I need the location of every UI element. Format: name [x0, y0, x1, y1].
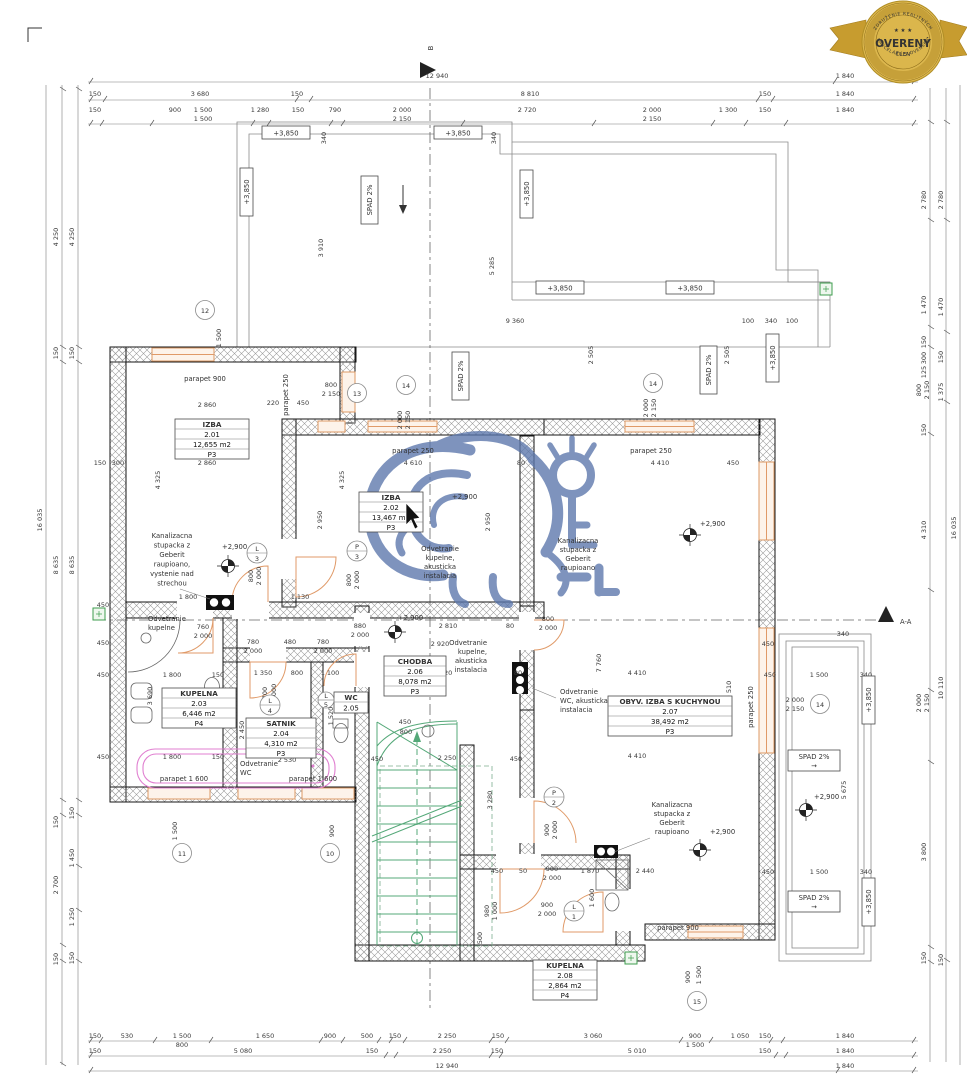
svg-text:1 500: 1 500: [215, 329, 223, 348]
svg-text:450: 450: [510, 755, 522, 763]
svg-text:+3,850: +3,850: [243, 179, 251, 204]
svg-text:2.07: 2.07: [662, 708, 678, 716]
svg-text:450: 450: [727, 459, 739, 467]
svg-text:9 360: 9 360: [506, 317, 525, 325]
svg-text:→: →: [811, 903, 817, 911]
svg-text:+3,850: +3,850: [865, 889, 873, 914]
svg-text:450: 450: [97, 753, 109, 761]
svg-text:450: 450: [97, 601, 109, 609]
svg-text:220: 220: [267, 399, 279, 407]
svg-text:790: 790: [329, 106, 341, 114]
svg-text:vystenie nad: vystenie nad: [150, 570, 194, 578]
svg-text:5 675: 5 675: [840, 781, 848, 800]
svg-text:2 000: 2 000: [543, 874, 562, 882]
svg-text:8 810: 8 810: [521, 90, 540, 98]
svg-text:4 310: 4 310: [920, 521, 928, 540]
grid-marker-left: [93, 608, 105, 620]
svg-text:3: 3: [255, 555, 259, 563]
svg-text:2.04: 2.04: [273, 730, 289, 738]
svg-text:2: 2: [552, 799, 556, 807]
svg-text:2 860: 2 860: [198, 401, 217, 409]
svg-text:2 150: 2 150: [786, 705, 805, 713]
svg-text:150: 150: [759, 1047, 771, 1055]
svg-text:16 035: 16 035: [950, 517, 958, 540]
svg-text:SPAD 2%: SPAD 2%: [705, 354, 713, 385]
svg-text:900: 900: [546, 865, 558, 873]
svg-text:1 500: 1 500: [810, 868, 829, 876]
svg-text:+3,850: +3,850: [547, 285, 572, 293]
svg-text:4 325: 4 325: [154, 471, 162, 490]
badge-subtitle: ČLEN: [896, 51, 911, 58]
svg-text:2.03: 2.03: [191, 700, 207, 708]
svg-text:8 635: 8 635: [68, 556, 76, 575]
svg-text:1 500: 1 500: [194, 115, 213, 123]
svg-text:SPAD 2%: SPAD 2%: [366, 184, 374, 215]
svg-text:2 000: 2 000: [915, 694, 923, 713]
svg-text:2 440: 2 440: [636, 867, 655, 875]
svg-text:2 450: 2 450: [238, 721, 246, 740]
svg-text:instalacia: instalacia: [424, 572, 456, 580]
svg-text:150: 150: [89, 1032, 101, 1040]
svg-text:3: 3: [355, 553, 359, 561]
svg-text:340: 340: [765, 317, 777, 325]
room-label-wc-2-05: WC 2.05: [334, 692, 368, 713]
level-note: +2,900: [710, 828, 735, 836]
svg-text:1 500: 1 500: [695, 966, 703, 985]
svg-text:8 635: 8 635: [52, 556, 60, 575]
svg-text:1 500: 1 500: [173, 1032, 192, 1040]
svg-text:P3: P3: [411, 688, 420, 696]
svg-text:150: 150: [366, 1047, 378, 1055]
svg-text:instalacia: instalacia: [560, 706, 592, 714]
svg-text:IZBA: IZBA: [382, 493, 401, 502]
svg-text:150: 150: [89, 1047, 101, 1055]
svg-text:150: 150: [68, 952, 76, 964]
svg-text:500: 500: [361, 1032, 373, 1040]
svg-text:450: 450: [764, 671, 776, 679]
svg-text:800: 800: [542, 615, 554, 623]
svg-text:P3: P3: [666, 728, 675, 736]
svg-text:4 410: 4 410: [628, 669, 647, 677]
svg-text:1 500: 1 500: [194, 106, 213, 114]
note-odvetranie-wc-ak: Odvetranie WC, akusticka instalacia: [532, 688, 608, 714]
svg-text:1 840: 1 840: [836, 1032, 855, 1040]
svg-text:1 500: 1 500: [810, 671, 829, 679]
svg-text:WC: WC: [240, 769, 252, 777]
svg-text:11: 11: [178, 850, 186, 858]
svg-text:akusticka: akusticka: [424, 563, 456, 571]
svg-text:150: 150: [89, 106, 101, 114]
svg-text:+3,850: +3,850: [523, 181, 531, 206]
svg-text:14: 14: [816, 701, 824, 709]
svg-text:980: 980: [483, 905, 491, 917]
svg-text:raupioano: raupioano: [561, 564, 595, 572]
note-kanalizacna-center: Kanalizacna stupacka z Geberit raupioano: [558, 537, 599, 572]
note-odvetranie-kupelna-ak-1: Odvetranie kupelne, akusticka instalacia: [421, 545, 459, 580]
svg-text:A-A: A-A: [900, 618, 912, 626]
svg-text:5 010: 5 010: [628, 1047, 647, 1055]
svg-text:4 250: 4 250: [68, 228, 76, 247]
svg-text:P4: P4: [195, 720, 204, 728]
svg-text:6,446 m2: 6,446 m2: [182, 710, 216, 718]
svg-text:IZBA: IZBA: [203, 420, 222, 429]
svg-text:150: 150: [937, 954, 945, 966]
note-kanalizacna-bottom: Kanalizacna stupacka z Geberit raupioano: [614, 801, 692, 852]
svg-text:2 780: 2 780: [937, 191, 945, 210]
svg-text:+3,850: +3,850: [273, 130, 298, 138]
svg-text:800: 800: [345, 574, 353, 586]
svg-text:1 840: 1 840: [836, 72, 855, 80]
room-label-satnik-2-04: SATNIK 2.04 4,310 m2 P3: [246, 718, 316, 758]
svg-text:3 690: 3 690: [146, 687, 154, 706]
svg-text:100: 100: [742, 317, 754, 325]
svg-text:5: 5: [324, 701, 328, 709]
svg-text:450: 450: [97, 639, 109, 647]
badge-stars: ★ ★ ★: [894, 28, 912, 34]
svg-text:1 800: 1 800: [163, 753, 182, 761]
svg-text:kupelne,: kupelne,: [425, 554, 454, 562]
dim-chain-bottom: 150 530 1 500 800 1 650 900 500 150 2 25…: [89, 1032, 855, 1070]
svg-text:1 650: 1 650: [256, 1032, 275, 1040]
svg-text:Kanalizacna: Kanalizacna: [652, 801, 693, 809]
parapet-note: parapet 900: [657, 924, 699, 932]
svg-text:+3,850: +3,850: [677, 285, 702, 293]
level-marker: [384, 621, 406, 643]
svg-text:150: 150: [94, 459, 106, 467]
certification-badge: ZDRUŽENIE REALITNÝCH KANCELÁRIÍ SLOVENSK…: [830, 1, 967, 83]
svg-text:1 840: 1 840: [836, 1047, 855, 1055]
svg-text:2 150: 2 150: [404, 411, 412, 430]
svg-text:raupioano,: raupioano,: [154, 561, 190, 569]
svg-text:2.06: 2.06: [407, 668, 423, 676]
svg-text:2 250: 2 250: [438, 1032, 457, 1040]
svg-text:P: P: [552, 789, 556, 797]
svg-text:Geberit: Geberit: [659, 819, 685, 827]
dim-terrace: 3 910 5 285 340 340 9 360 100 340 100 2 …: [215, 132, 798, 365]
dim-chain-left: 16 035 4 250 150 8 635 150 2 700 150 4 2…: [36, 228, 76, 966]
level-marker: [795, 799, 817, 821]
svg-text:Geberit: Geberit: [159, 551, 185, 559]
svg-text:2 250: 2 250: [438, 754, 457, 762]
svg-text:2 780: 2 780: [920, 191, 928, 210]
svg-text:16 035: 16 035: [36, 509, 44, 532]
section-marker-aa: A-A: [878, 606, 912, 626]
svg-text:780: 780: [247, 638, 259, 646]
svg-text:Kanalizacna: Kanalizacna: [152, 532, 193, 540]
svg-text:125: 125: [920, 366, 928, 378]
svg-text:1 840: 1 840: [836, 106, 855, 114]
svg-text:1 375: 1 375: [937, 383, 945, 402]
svg-text:15: 15: [693, 998, 701, 1006]
svg-text:L: L: [324, 692, 328, 700]
svg-text:10 110: 10 110: [937, 677, 945, 700]
svg-text:1 000: 1 000: [491, 902, 499, 921]
room-label-izba-2-01: IZBA 2.01 12,655 m2 P3: [175, 419, 249, 459]
svg-text:2 150: 2 150: [322, 390, 341, 398]
svg-text:150: 150: [759, 90, 771, 98]
svg-text:2 150: 2 150: [393, 115, 412, 123]
svg-text:340: 340: [837, 630, 849, 638]
svg-text:150: 150: [52, 953, 60, 965]
svg-text:CHODBA: CHODBA: [398, 657, 433, 666]
svg-text:stupacka z: stupacka z: [560, 546, 597, 554]
svg-text:450: 450: [399, 718, 411, 726]
svg-text:150: 150: [491, 1047, 503, 1055]
svg-text:530: 530: [121, 1032, 133, 1040]
svg-text:3 060: 3 060: [584, 1032, 603, 1040]
svg-text:500: 500: [476, 932, 484, 944]
svg-text:800: 800: [176, 1041, 188, 1049]
svg-text:SPAD 2%: SPAD 2%: [457, 360, 465, 391]
svg-text:1 130: 1 130: [291, 593, 310, 601]
dim-interior: 2 860 220 450 800 2 150 2 860 4 325 4 32…: [94, 381, 872, 984]
svg-text:KUPELNA: KUPELNA: [180, 689, 218, 698]
svg-text:4,310 m2: 4,310 m2: [264, 740, 298, 748]
grid-marker-top-right: [820, 283, 832, 295]
svg-text:P3: P3: [208, 451, 217, 459]
svg-text:akusticka: akusticka: [455, 657, 487, 665]
svg-text:2.05: 2.05: [343, 705, 359, 713]
svg-text:150: 150: [212, 753, 224, 761]
note-kanalizacna-left: Kanalizacna stupacka z Geberit raupioano…: [150, 532, 210, 599]
svg-text:P3: P3: [387, 524, 396, 532]
level-note: +2,900: [222, 543, 247, 551]
svg-text:300: 300: [920, 352, 928, 364]
svg-text:Odvetranie: Odvetranie: [560, 688, 598, 696]
svg-text:450: 450: [762, 868, 774, 876]
svg-text:2 505: 2 505: [587, 346, 595, 365]
svg-text:3 680: 3 680: [191, 90, 210, 98]
svg-text:4 410: 4 410: [651, 459, 670, 467]
room-label-kupelna-2-03: KUPELNA 2.03 6,446 m2 P4: [162, 688, 236, 728]
svg-text:WC: WC: [344, 693, 357, 702]
grid-marker-bottom: [625, 952, 637, 964]
svg-text:480: 480: [284, 638, 296, 646]
svg-text:kupelne: kupelne: [148, 624, 175, 632]
svg-text:2 950: 2 950: [484, 513, 492, 532]
svg-text:12 940: 12 940: [436, 1062, 459, 1070]
floor-plan-drawing: B A-A 12 940 1 840 150 3 680 150 8 810 1…: [0, 0, 967, 1080]
svg-text:2 700: 2 700: [52, 876, 60, 895]
svg-text:2 720: 2 720: [518, 106, 537, 114]
svg-text:12,655 m2: 12,655 m2: [193, 441, 231, 449]
svg-text:12: 12: [201, 307, 209, 315]
svg-text:WC, akusticka: WC, akusticka: [560, 697, 608, 705]
svg-text:Odvetranie: Odvetranie: [148, 615, 186, 623]
svg-text:150: 150: [68, 347, 76, 359]
parapet-note: parapet 900: [184, 375, 226, 383]
svg-text:1 600: 1 600: [588, 889, 596, 908]
svg-text:2 000: 2 000: [396, 411, 404, 430]
floor-plan-page: B A-A 12 940 1 840 150 3 680 150 8 810 1…: [0, 0, 967, 1080]
svg-text:instalacia: instalacia: [455, 666, 487, 674]
svg-text:OBYV. IZBA S KUCHYNOU: OBYV. IZBA S KUCHYNOU: [619, 697, 720, 706]
svg-text:150: 150: [920, 424, 928, 436]
svg-text:2 000: 2 000: [642, 399, 650, 418]
roof-terrace-outline: [110, 122, 830, 347]
svg-text:880: 880: [354, 622, 366, 630]
svg-text:Odvetranie: Odvetranie: [421, 545, 459, 553]
svg-text:12 940: 12 940: [426, 72, 449, 80]
svg-text:L: L: [255, 545, 259, 553]
svg-text:1 870: 1 870: [581, 867, 600, 875]
room-label-kupelna-2-08: KUPELNA 2.08 2,864 m2 P4: [533, 960, 597, 1000]
svg-text:1: 1: [572, 913, 576, 921]
svg-text:3 910: 3 910: [317, 239, 325, 258]
svg-text:80: 80: [506, 622, 514, 630]
level-note: +2,900: [452, 493, 477, 501]
svg-text:5 080: 5 080: [234, 1047, 253, 1055]
svg-text:stupacka z: stupacka z: [154, 542, 191, 550]
room-labels: IZBA 2.01 12,655 m2 P3 IZBA 2.02 13,467 …: [162, 419, 732, 1000]
svg-text:2 860: 2 860: [198, 459, 217, 467]
level-marker: [679, 524, 701, 546]
svg-text:+3,850: +3,850: [445, 130, 470, 138]
svg-text:1 350: 1 350: [254, 669, 273, 677]
svg-text:150: 150: [292, 106, 304, 114]
svg-text:150: 150: [89, 90, 101, 98]
parapet-note: parapet 250: [747, 686, 755, 728]
svg-text:10: 10: [326, 850, 334, 858]
svg-text:2 000: 2 000: [551, 821, 559, 840]
svg-text:7 760: 7 760: [595, 654, 603, 673]
svg-text:SPAD 2%: SPAD 2%: [799, 753, 830, 761]
svg-text:Odvetranie: Odvetranie: [449, 639, 487, 647]
svg-text:50: 50: [519, 867, 527, 875]
svg-text:4: 4: [268, 707, 272, 715]
svg-text:450: 450: [297, 399, 309, 407]
svg-text:8,078 m2: 8,078 m2: [398, 678, 432, 686]
room-label-obyv-2-07: OBYV. IZBA S KUCHYNOU 2.07 38,492 m2 P3: [608, 696, 732, 736]
svg-text:2 000: 2 000: [255, 567, 263, 586]
svg-text:B: B: [427, 45, 435, 50]
svg-text:450: 450: [762, 640, 774, 648]
parapet-note: parapet 250: [630, 447, 672, 455]
svg-text:150: 150: [937, 351, 945, 363]
svg-text:2.02: 2.02: [383, 504, 399, 512]
svg-text:2 000: 2 000: [393, 106, 412, 114]
svg-text:1 450: 1 450: [68, 849, 76, 868]
svg-text:SATNIK: SATNIK: [266, 719, 296, 728]
svg-text:2 000: 2 000: [314, 647, 333, 655]
svg-text:900: 900: [689, 1032, 701, 1040]
svg-text:800: 800: [915, 384, 923, 396]
svg-text:P4: P4: [561, 992, 570, 1000]
svg-text:14: 14: [649, 380, 657, 388]
svg-text:2 000: 2 000: [351, 631, 370, 639]
svg-text:450: 450: [491, 867, 503, 875]
svg-text:150: 150: [212, 671, 224, 679]
svg-text:150: 150: [68, 807, 76, 819]
svg-text:stupacka z: stupacka z: [654, 810, 691, 818]
svg-text:2 000: 2 000: [353, 571, 361, 590]
svg-text:2 000: 2 000: [194, 632, 213, 640]
svg-text:150: 150: [291, 90, 303, 98]
parapet-note: parapet 1 600: [160, 775, 208, 783]
svg-text:KUPELNA: KUPELNA: [546, 961, 584, 970]
svg-text:+3,850: +3,850: [865, 687, 873, 712]
svg-text:2 505: 2 505: [723, 346, 731, 365]
svg-text:1 280: 1 280: [251, 106, 270, 114]
svg-text:3 800: 3 800: [920, 843, 928, 862]
svg-text:2 000: 2 000: [539, 624, 558, 632]
svg-text:340: 340: [320, 132, 328, 144]
svg-text:SPAD 2%: SPAD 2%: [799, 894, 830, 902]
svg-text:4 410: 4 410: [628, 752, 647, 760]
svg-text:L: L: [268, 697, 272, 705]
svg-text:340: 340: [490, 132, 498, 144]
svg-text:2 150: 2 150: [650, 399, 658, 418]
svg-text:2 250: 2 250: [433, 1047, 452, 1055]
svg-text:kupelne,: kupelne,: [458, 648, 487, 656]
svg-text:900: 900: [684, 971, 692, 983]
svg-text:+3,850: +3,850: [769, 345, 777, 370]
svg-text:1 050: 1 050: [731, 1032, 750, 1040]
room-label-chodba-2-06: CHODBA 2.06 8,078 m2 P3: [384, 656, 446, 696]
note-odvetranie-kupelna-ak-2: Odvetranie kupelne, akusticka instalacia: [449, 639, 487, 674]
svg-text:1 840: 1 840: [836, 90, 855, 98]
svg-text:13: 13: [353, 390, 361, 398]
svg-text:2 000: 2 000: [786, 696, 805, 704]
svg-text:800: 800: [247, 570, 255, 582]
svg-text:150: 150: [389, 1032, 401, 1040]
svg-text:900: 900: [169, 106, 181, 114]
dim-chain-top: 12 940 1 840 150 3 680 150 8 810 150 1 8…: [89, 72, 855, 123]
level-note: +2,900: [398, 614, 423, 622]
svg-text:150: 150: [52, 816, 60, 828]
svg-text:2 950: 2 950: [316, 511, 324, 530]
svg-text:100: 100: [786, 317, 798, 325]
badge-title: OVERENÝ: [875, 37, 931, 50]
svg-text:4 610: 4 610: [404, 459, 423, 467]
svg-text:800: 800: [325, 381, 337, 389]
svg-text:2 000: 2 000: [538, 910, 557, 918]
parapet-note: parapet 250: [392, 447, 434, 455]
svg-text:1 800: 1 800: [179, 593, 198, 601]
level-marker: [689, 839, 711, 861]
svg-text:2.08: 2.08: [557, 972, 573, 980]
svg-text:4 250: 4 250: [52, 228, 60, 247]
svg-text:2,864 m2: 2,864 m2: [548, 982, 582, 990]
svg-text:900: 900: [328, 825, 336, 837]
svg-text:P: P: [355, 543, 359, 551]
svg-text:150: 150: [52, 347, 60, 359]
svg-text:2 150: 2 150: [643, 115, 662, 123]
svg-text:150: 150: [759, 106, 771, 114]
svg-text:760: 760: [197, 623, 209, 631]
svg-text:450: 450: [97, 671, 109, 679]
svg-text:800: 800: [400, 728, 412, 736]
svg-text:2 920: 2 920: [431, 640, 450, 648]
svg-text:1 100: 1 100: [321, 669, 340, 677]
svg-text:13,467 m2: 13,467 m2: [372, 514, 410, 522]
svg-text:900: 900: [543, 824, 551, 836]
parapet-note: parapet 1 600: [289, 775, 337, 783]
svg-text:1 500: 1 500: [686, 1041, 705, 1049]
svg-text:340: 340: [860, 868, 872, 876]
svg-text:2 150: 2 150: [923, 381, 931, 400]
note-odvetranie-wc: Odvetranie WC: [240, 760, 278, 777]
svg-text:2 150: 2 150: [923, 694, 931, 713]
page-corner-mark: [28, 28, 42, 42]
svg-text:L: L: [572, 903, 576, 911]
dim-chain-right: 16 035 10 110 2 780 1 470 150 1 375 150 …: [915, 191, 958, 967]
level-note: +2,900: [814, 793, 839, 801]
svg-text:strechou: strechou: [157, 580, 187, 588]
svg-text:14: 14: [402, 382, 410, 390]
svg-text:raupioano: raupioano: [655, 828, 689, 836]
svg-text:150: 150: [492, 1032, 504, 1040]
